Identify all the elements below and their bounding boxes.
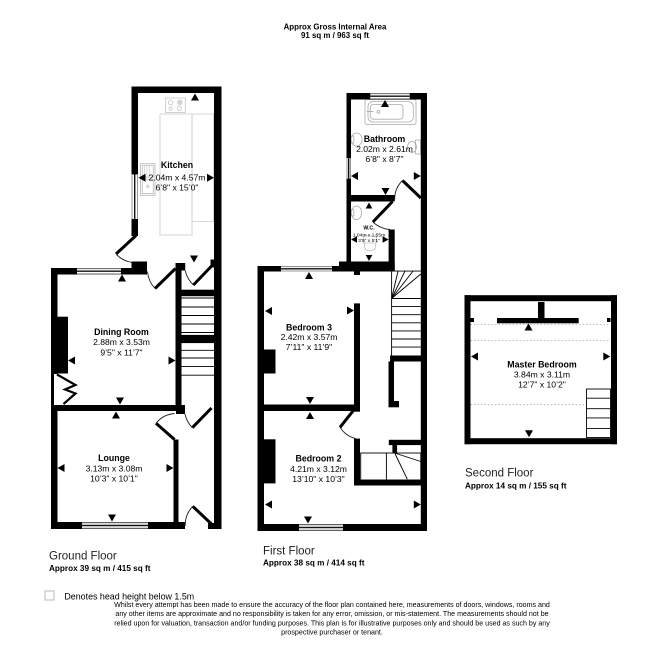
svg-text:W.C.: W.C. xyxy=(363,225,375,231)
svg-text:2.88m x 3.53m: 2.88m x 3.53m xyxy=(93,337,150,347)
svg-text:3’5" x 5’1": 3’5" x 5’1" xyxy=(358,238,380,244)
svg-text:2.04m x 4.57m: 2.04m x 4.57m xyxy=(149,172,206,182)
svg-text:First Floor: First Floor xyxy=(263,546,315,558)
svg-text:1.04m x 1.55m: 1.04m x 1.55m xyxy=(353,232,385,238)
svg-text:13’10" x 10’3": 13’10" x 10’3" xyxy=(292,474,344,484)
svg-text:Denotes head height below 1.5m: Denotes head height below 1.5m xyxy=(64,592,194,602)
svg-text:Bedroom 2: Bedroom 2 xyxy=(296,454,342,464)
svg-text:6’8" x 15’0": 6’8" x 15’0" xyxy=(156,182,199,192)
svg-text:2.02m x 2.61m: 2.02m x 2.61m xyxy=(356,144,413,154)
svg-text:3.84m x 3.11m: 3.84m x 3.11m xyxy=(514,369,570,379)
svg-text:Whilst every attempt has been: Whilst every attempt has been made to en… xyxy=(114,601,550,609)
svg-text:Bedroom 3: Bedroom 3 xyxy=(286,322,332,332)
svg-text:any other items are approximat: any other items are approximate and no r… xyxy=(115,610,548,618)
svg-text:Approx 39 sq m / 415 sq ft: Approx 39 sq m / 415 sq ft xyxy=(49,564,151,573)
svg-text:Lounge: Lounge xyxy=(98,453,130,463)
svg-text:91 sq m / 963 sq ft: 91 sq m / 963 sq ft xyxy=(301,31,369,40)
svg-text:4.21m x 3.12m: 4.21m x 3.12m xyxy=(290,464,347,474)
svg-text:6’8" x 8’7": 6’8" x 8’7" xyxy=(365,154,403,164)
svg-text:Dining Room: Dining Room xyxy=(94,327,149,337)
svg-text:Bathroom: Bathroom xyxy=(364,134,406,144)
svg-text:Master Bedroom: Master Bedroom xyxy=(507,360,577,370)
svg-text:Kitchen: Kitchen xyxy=(161,160,193,170)
svg-text:7’11" x 11’9": 7’11" x 11’9" xyxy=(286,342,332,352)
svg-text:relied upon for valuation, tra: relied upon for valuation, transaction a… xyxy=(114,619,550,627)
svg-text:10’3" x 10’1": 10’3" x 10’1" xyxy=(90,474,138,484)
svg-text:2.42m x 3.57m: 2.42m x 3.57m xyxy=(281,332,338,342)
svg-text:Second Floor: Second Floor xyxy=(465,467,534,479)
svg-text:9’5" x 11’7": 9’5" x 11’7" xyxy=(100,347,142,357)
svg-text:prospective purchaser or tenan: prospective purchaser or tenant. xyxy=(281,629,383,637)
svg-text:12’7" x 10’2": 12’7" x 10’2" xyxy=(518,379,566,389)
svg-text:Ground Floor: Ground Floor xyxy=(49,551,117,563)
svg-text:Approx 38 sq m / 414 sq ft: Approx 38 sq m / 414 sq ft xyxy=(263,559,365,568)
svg-text:3.13m x 3.08m: 3.13m x 3.08m xyxy=(86,463,143,473)
svg-text:Approx 14 sq m / 155 sq ft: Approx 14 sq m / 155 sq ft xyxy=(465,482,567,491)
